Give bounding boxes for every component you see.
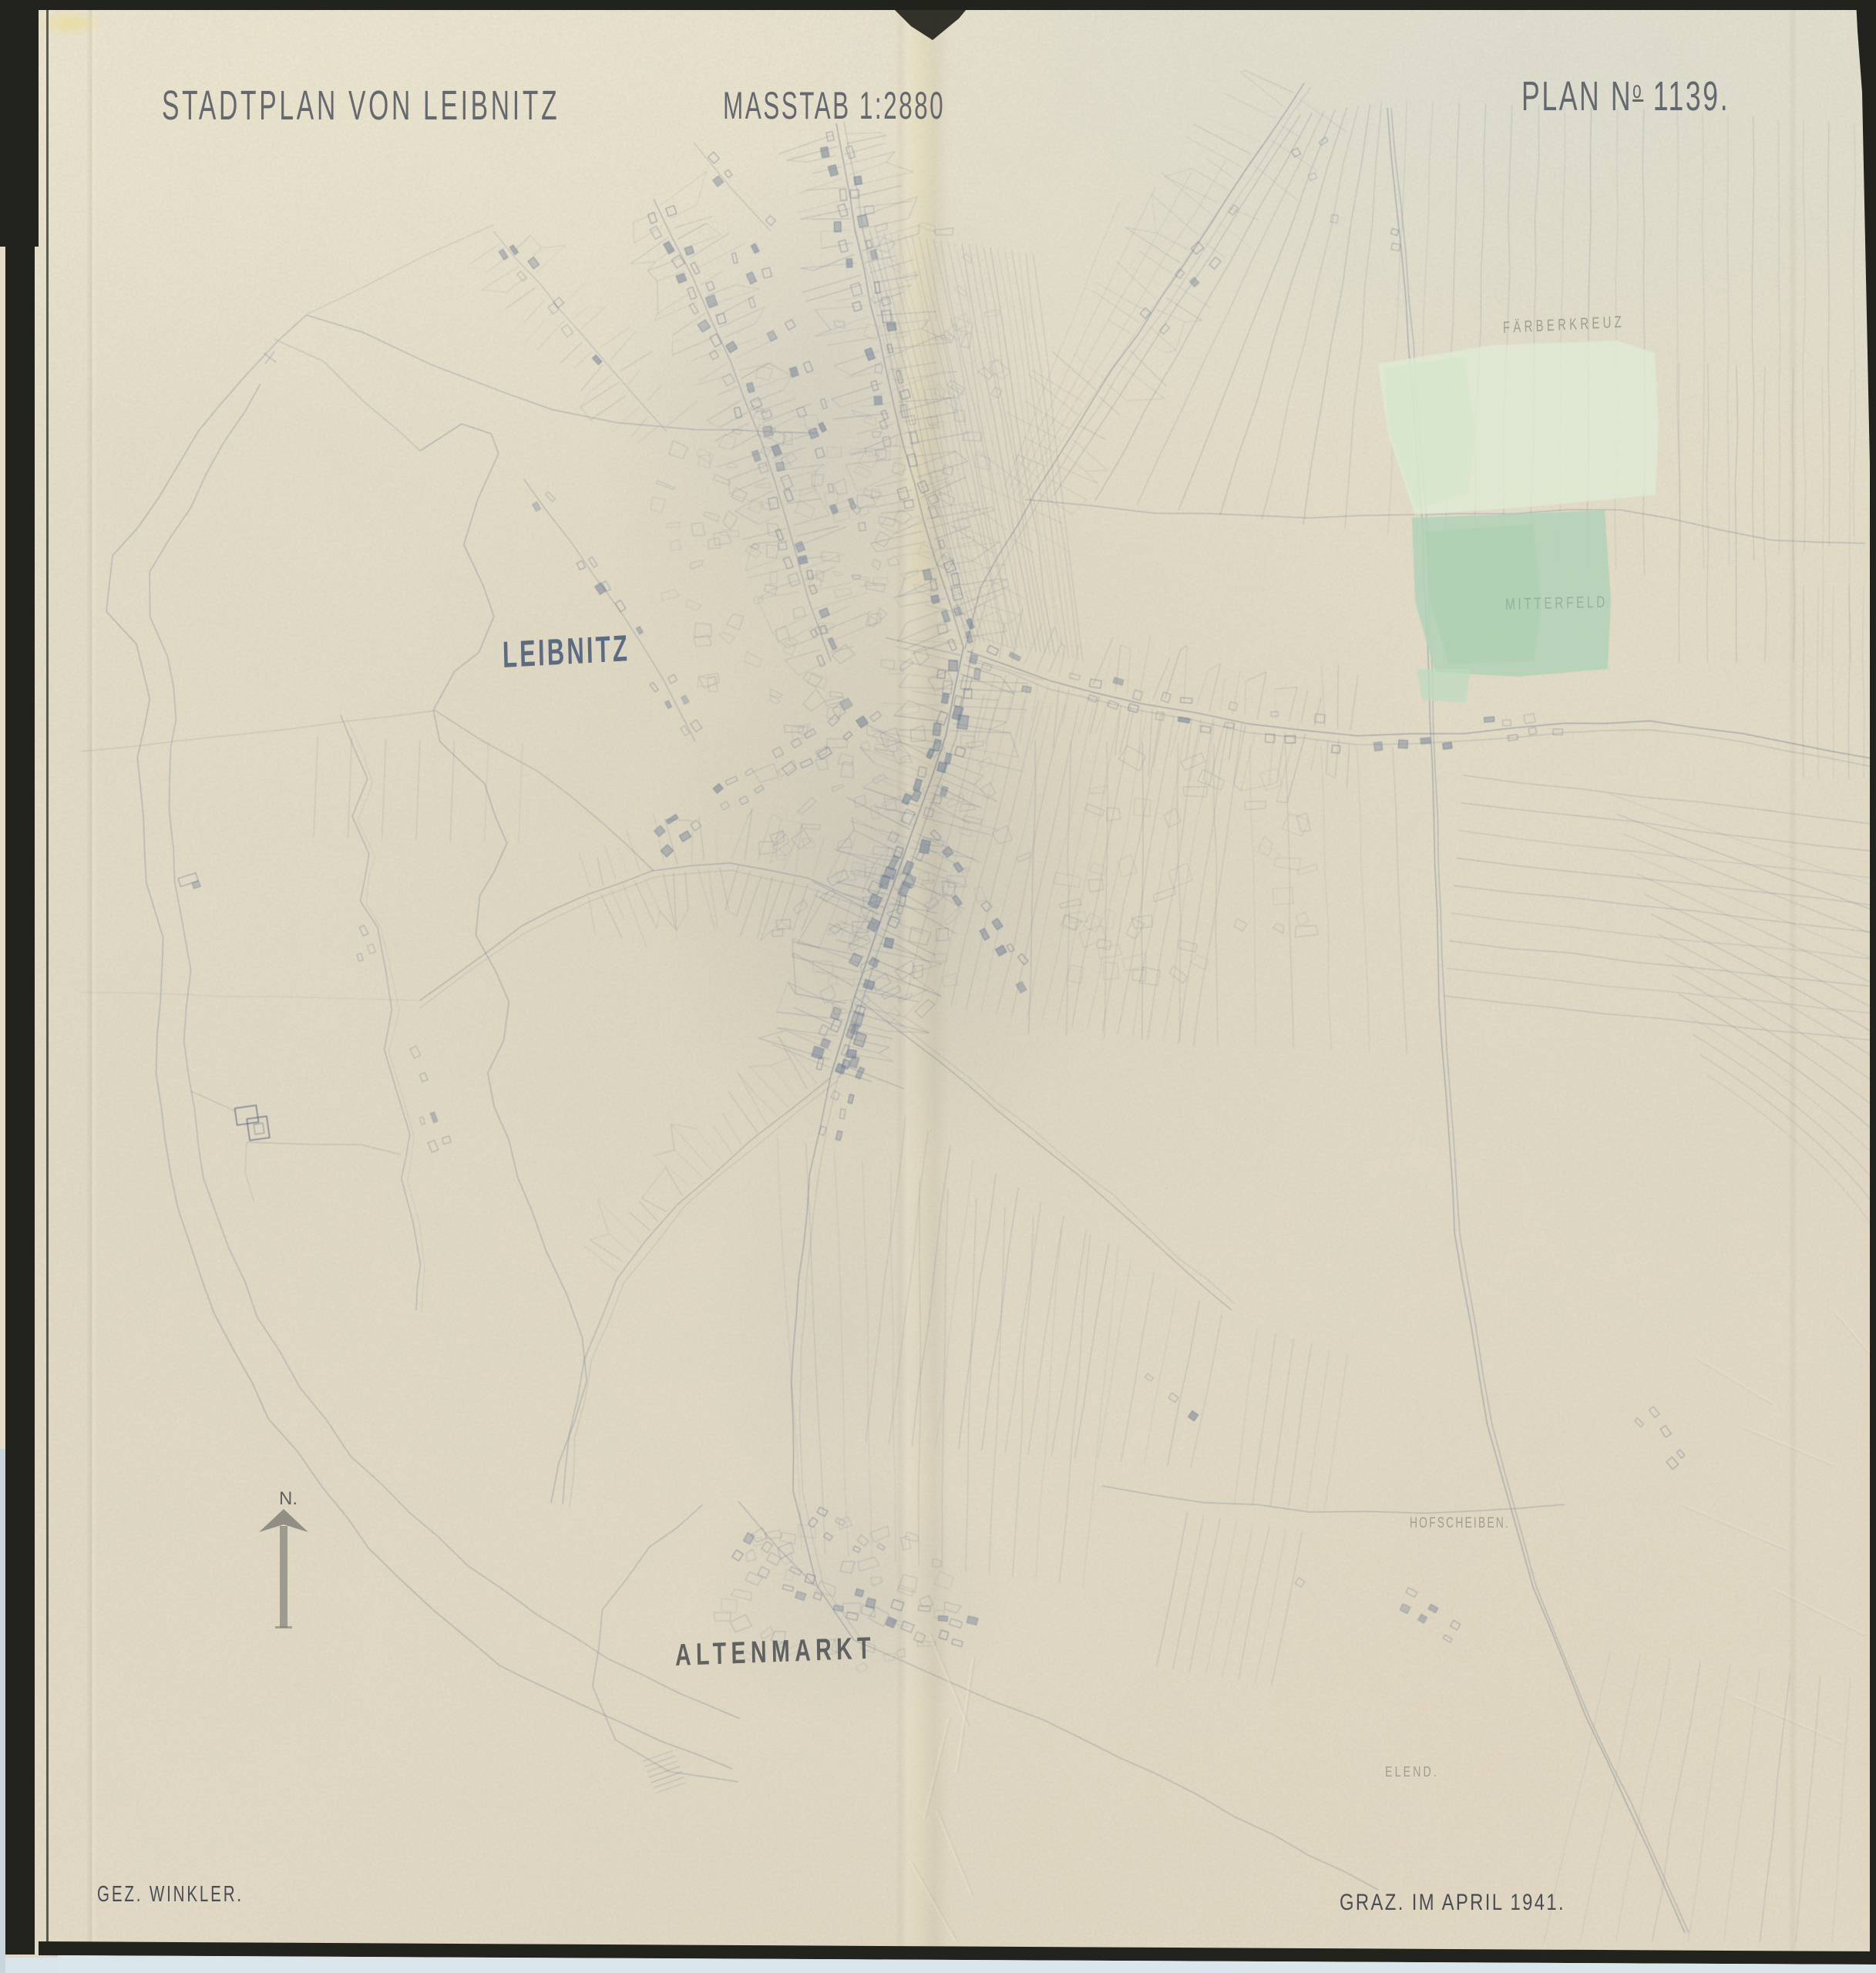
svg-text:N.: N.	[279, 1488, 298, 1509]
